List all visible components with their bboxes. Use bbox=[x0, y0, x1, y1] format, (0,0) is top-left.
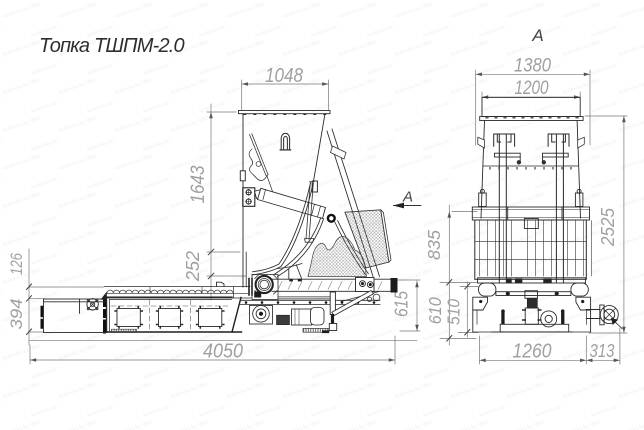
svg-text:1260: 1260 bbox=[513, 341, 552, 363]
svg-text:313: 313 bbox=[590, 341, 615, 361]
svg-text:126: 126 bbox=[7, 253, 26, 275]
svg-text:А: А bbox=[531, 26, 543, 45]
svg-text:4050: 4050 bbox=[203, 341, 243, 363]
svg-text:835: 835 bbox=[424, 230, 444, 260]
svg-text:А: А bbox=[402, 189, 413, 206]
svg-text:1380: 1380 bbox=[514, 56, 551, 77]
svg-text:510: 510 bbox=[444, 299, 464, 325]
svg-text:Топка ТШПМ-2.0: Топка ТШПМ-2.0 bbox=[39, 35, 185, 57]
svg-text:1200: 1200 bbox=[515, 78, 549, 99]
svg-text:1643: 1643 bbox=[188, 165, 209, 203]
svg-text:252: 252 bbox=[183, 251, 203, 282]
svg-text:1048: 1048 bbox=[265, 65, 303, 87]
svg-text:394: 394 bbox=[7, 299, 26, 330]
svg-text:2525: 2525 bbox=[598, 207, 618, 247]
svg-text:615: 615 bbox=[392, 290, 412, 317]
svg-text:610: 610 bbox=[425, 297, 445, 324]
